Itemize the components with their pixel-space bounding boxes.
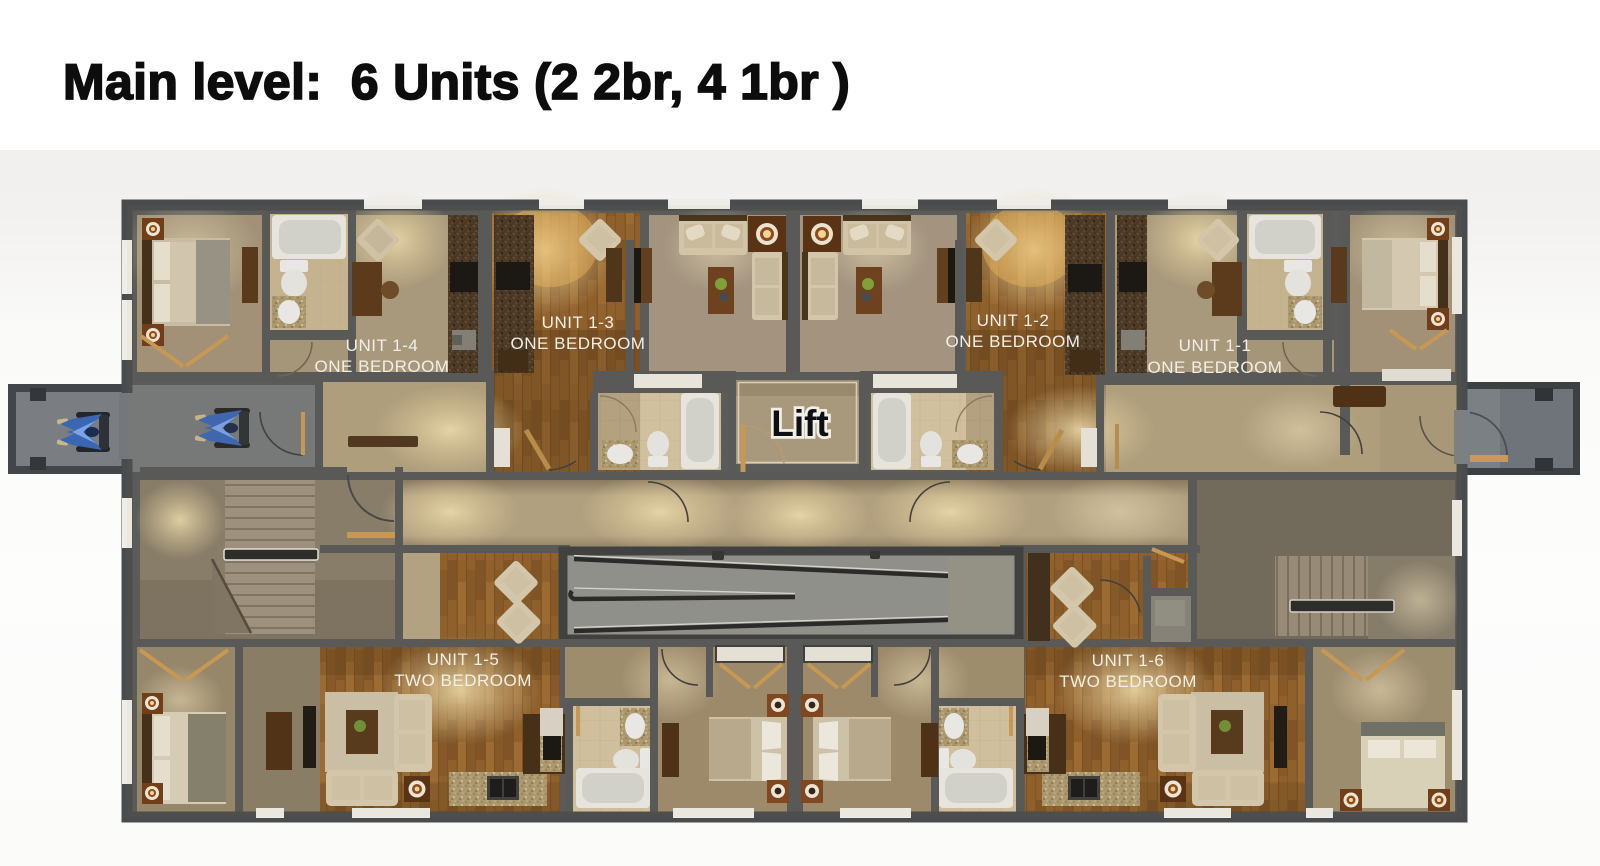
svg-text:UNIT 1-5: UNIT 1-5 xyxy=(427,650,500,669)
svg-text:Lift: Lift xyxy=(771,403,829,444)
svg-text:UNIT 1-1: UNIT 1-1 xyxy=(1179,336,1252,355)
svg-text:ONE BEDROOM: ONE BEDROOM xyxy=(511,334,646,353)
svg-text:TWO BEDROOM: TWO BEDROOM xyxy=(1059,672,1197,691)
svg-text:UNIT 1-4: UNIT 1-4 xyxy=(346,336,419,355)
svg-text:ONE BEDROOM: ONE BEDROOM xyxy=(1148,358,1283,377)
svg-text:UNIT 1-2: UNIT 1-2 xyxy=(977,311,1050,330)
svg-text:UNIT 1-6: UNIT 1-6 xyxy=(1092,651,1165,670)
svg-text:UNIT 1-3: UNIT 1-3 xyxy=(542,313,615,332)
svg-text:TWO BEDROOM: TWO BEDROOM xyxy=(394,671,532,690)
svg-text:ONE BEDROOM: ONE BEDROOM xyxy=(946,332,1081,351)
svg-text:ONE BEDROOM: ONE BEDROOM xyxy=(315,357,450,376)
svg-text:Main level: 6 Units (2 2br, 4: Main level: 6 Units (2 2br, 4 1br ) xyxy=(63,54,850,110)
